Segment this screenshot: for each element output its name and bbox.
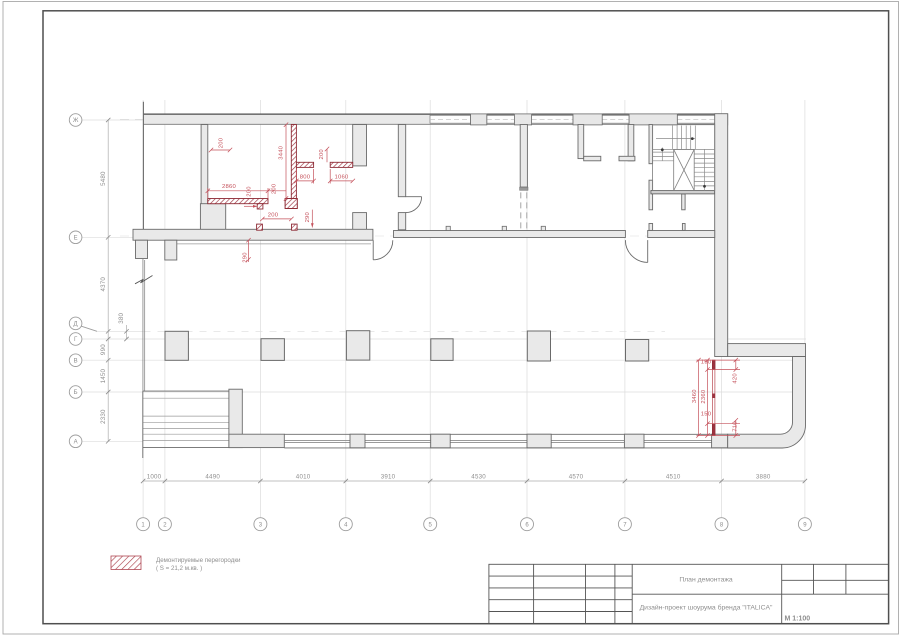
svg-text:2330: 2330: [100, 409, 107, 424]
svg-text:380: 380: [118, 312, 125, 323]
svg-text:5480: 5480: [100, 171, 107, 186]
svg-text:Д: Д: [74, 322, 78, 328]
svg-text:200: 200: [218, 137, 224, 148]
svg-text:420: 420: [733, 373, 739, 384]
svg-text:2360: 2360: [701, 389, 707, 403]
svg-text:990: 990: [100, 344, 107, 355]
svg-text:1060: 1060: [335, 174, 349, 180]
svg-text:3460: 3460: [692, 389, 698, 403]
svg-text:150: 150: [701, 360, 712, 366]
svg-text:4370: 4370: [100, 277, 107, 292]
svg-text:3440: 3440: [279, 145, 285, 159]
svg-text:4510: 4510: [666, 474, 681, 481]
svg-text:200: 200: [271, 183, 277, 194]
svg-text:1450: 1450: [100, 368, 107, 383]
svg-text:3880: 3880: [756, 474, 771, 481]
svg-text:200: 200: [268, 213, 279, 219]
svg-text:Е: Е: [74, 236, 78, 242]
svg-text:А: А: [74, 440, 78, 446]
svg-text:В: В: [74, 358, 78, 364]
svg-text:200: 200: [319, 149, 325, 160]
svg-text:1000: 1000: [147, 474, 162, 481]
svg-text:290: 290: [305, 211, 311, 222]
svg-text:3910: 3910: [381, 474, 396, 481]
svg-text:710: 710: [733, 421, 739, 432]
svg-text:М 1:100: М 1:100: [785, 615, 811, 622]
svg-text:2860: 2860: [222, 184, 236, 190]
svg-text:4530: 4530: [471, 474, 486, 481]
svg-text:Б: Б: [74, 390, 78, 396]
svg-text:4490: 4490: [205, 474, 220, 481]
svg-text:План демонтажа: План демонтажа: [679, 577, 733, 584]
svg-text:( S = 21,2 м.кв. ): ( S = 21,2 м.кв. ): [156, 565, 202, 572]
svg-text:290: 290: [243, 252, 249, 263]
svg-text:4010: 4010: [296, 474, 311, 481]
svg-text:150: 150: [701, 411, 712, 417]
svg-text:200: 200: [247, 186, 253, 197]
svg-text:4570: 4570: [569, 474, 584, 481]
svg-text:Ж: Ж: [73, 118, 79, 124]
svg-text:800: 800: [300, 174, 311, 180]
svg-text:Демонтируемые перегородки: Демонтируемые перегородки: [156, 557, 241, 564]
svg-text:Дизайн-проект шоурума бренда ": Дизайн-проект шоурума бренда "ITALICA": [640, 604, 773, 612]
